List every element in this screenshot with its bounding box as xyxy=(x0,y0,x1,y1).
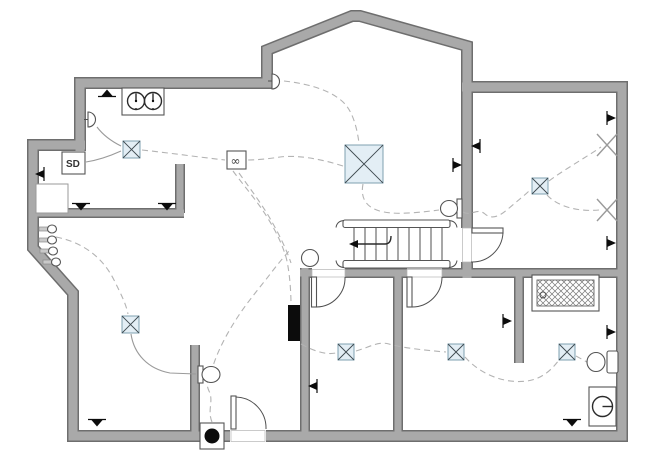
switch-outlet xyxy=(453,158,462,172)
lamp-globe xyxy=(441,201,458,217)
receptacle-triangle xyxy=(101,90,113,97)
receptacle-triangle xyxy=(566,420,578,427)
junction-outlet: ∞ xyxy=(227,151,246,169)
hook-ring xyxy=(48,236,57,244)
floor-plan-page: SD ∞ xyxy=(0,0,650,459)
lamp-globe xyxy=(202,367,220,383)
circuit-wire xyxy=(362,184,439,213)
hook-ring xyxy=(49,247,58,255)
dial-box-frame xyxy=(122,88,164,115)
receptacle-outlet xyxy=(563,420,581,427)
circuit-wire xyxy=(86,151,121,162)
dial-center-dot xyxy=(135,100,137,102)
circuit-wiring xyxy=(56,81,601,422)
hook-stub xyxy=(39,227,48,231)
hook-stub xyxy=(43,260,52,264)
wall-x-mark xyxy=(597,134,617,156)
switch-outlets xyxy=(35,111,616,393)
switch-flag xyxy=(503,317,512,325)
drain-dot xyxy=(205,429,220,444)
switch-flag xyxy=(607,239,616,247)
doorway-opening xyxy=(463,228,472,262)
door-swing-arc xyxy=(471,233,503,262)
circuit-wire xyxy=(97,127,121,146)
door-leaf xyxy=(312,277,317,307)
wall-lamp xyxy=(441,199,463,218)
hook-stub xyxy=(40,249,49,253)
wall-sconce xyxy=(88,112,96,127)
wall-hook xyxy=(39,225,57,233)
wall-x-mark xyxy=(597,199,617,221)
dial-center-dot xyxy=(152,100,154,102)
wall-lamps xyxy=(84,74,462,383)
ceiling-fixture-box xyxy=(338,344,354,360)
hook-ring xyxy=(48,225,57,233)
exterior-door-opening xyxy=(231,431,265,442)
door-swing-arc xyxy=(236,397,266,429)
receptacle-outlet xyxy=(88,420,106,427)
electrical-panel xyxy=(288,305,300,341)
wall-lamp xyxy=(198,366,220,383)
dial-control-box xyxy=(122,88,164,115)
circuit-wire xyxy=(142,150,225,160)
receptacle-outlet xyxy=(98,90,116,97)
wall-sconce xyxy=(272,74,280,89)
circuit-wire xyxy=(284,81,359,143)
basement-electrical-floor-plan: SD ∞ xyxy=(0,0,650,459)
circuit-wire xyxy=(465,357,559,382)
switch-flag xyxy=(607,328,616,336)
ceiling-fixture-box xyxy=(345,145,383,183)
switch-flag xyxy=(607,114,616,122)
door-swing-arc xyxy=(412,277,442,307)
smoke-detector-label: SD xyxy=(66,159,80,170)
switch-flag xyxy=(453,161,462,169)
switch-outlet xyxy=(503,314,512,328)
circuit-wire xyxy=(207,251,289,422)
pump-unit xyxy=(589,387,616,426)
ceiling-fixture-box xyxy=(559,344,575,360)
switch-outlet xyxy=(607,111,616,125)
circuit-wire xyxy=(247,156,343,166)
hatched-vent xyxy=(532,275,599,311)
ceiling-light-round xyxy=(302,250,319,267)
exterior-door-leaf xyxy=(231,396,236,429)
circuit-wire xyxy=(131,334,196,374)
appliance-box xyxy=(36,184,68,213)
receptacle-triangle xyxy=(91,420,103,427)
ceiling-fixture-box xyxy=(532,178,548,194)
floor-drain xyxy=(200,423,224,449)
walls xyxy=(33,16,622,436)
switch-outlet xyxy=(607,325,616,339)
stair-direction-arrow xyxy=(357,236,391,244)
ceiling-fixture-box xyxy=(448,344,464,360)
ceiling-fixture-box xyxy=(122,316,139,333)
doorway-opening xyxy=(312,270,345,278)
hook-stub xyxy=(39,238,48,242)
circuit-wire xyxy=(549,147,601,181)
receptacle-outlets xyxy=(72,90,581,427)
wall-hook xyxy=(39,236,57,244)
junction-outlet-label: ∞ xyxy=(231,154,241,168)
hook-ring xyxy=(52,258,61,266)
ceiling-fixtures xyxy=(122,141,575,360)
exterior-wall-fill xyxy=(33,16,622,436)
door-leaf xyxy=(472,228,503,233)
door-swing-arc xyxy=(317,277,346,307)
switch-outlet xyxy=(607,236,616,250)
stair-rail-top xyxy=(343,220,450,228)
toilet-tank xyxy=(607,351,618,373)
circuit-wire xyxy=(56,237,128,314)
circuit-wire xyxy=(463,190,530,217)
smoke-detector: SD xyxy=(62,152,85,174)
toilet-bowl xyxy=(587,353,605,372)
circuit-wire xyxy=(547,195,599,210)
door-leaf xyxy=(407,277,412,307)
toilet xyxy=(587,351,618,373)
doorway-opening xyxy=(407,270,442,278)
ceiling-fixture-box xyxy=(123,141,140,158)
staircase xyxy=(336,220,457,268)
stair-rail-bottom xyxy=(343,261,450,269)
